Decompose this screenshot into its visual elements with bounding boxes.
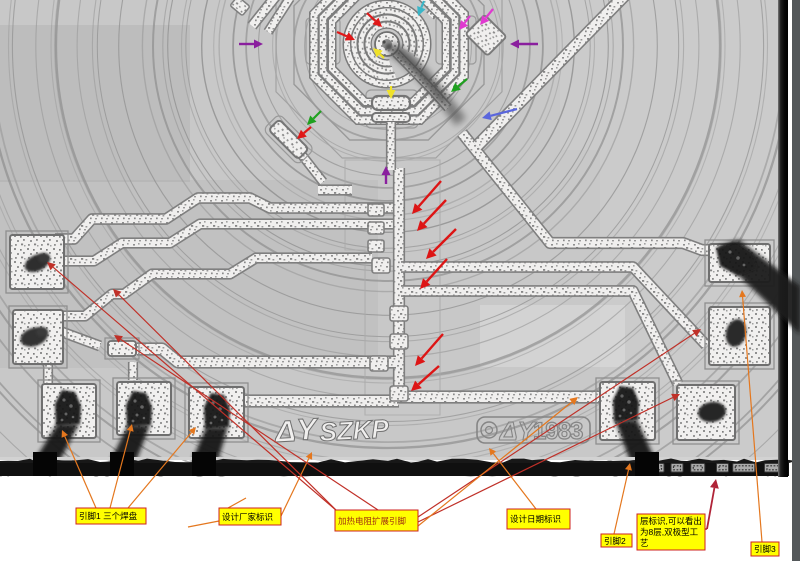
svg-text:引脚1 三个焊盘: 引脚1 三个焊盘 [79, 511, 138, 521]
svg-text:Δ: Δ [274, 415, 297, 449]
svg-text:层标识,可以看出: 层标识,可以看出 [640, 516, 702, 526]
svg-text:艺: 艺 [640, 538, 649, 548]
svg-text:SZKP: SZKP [319, 413, 390, 447]
svg-text:为8层,双极型工: 为8层,双极型工 [640, 527, 699, 537]
svg-text:设计厂家标识: 设计厂家标识 [222, 512, 273, 522]
svg-text:引脚3: 引脚3 [754, 544, 776, 554]
svg-text:1983: 1983 [533, 418, 583, 445]
svg-text:加热电阻扩展引脚: 加热电阻扩展引脚 [338, 516, 406, 526]
svg-text:设计日期标识: 设计日期标识 [510, 514, 561, 524]
svg-text:引脚2: 引脚2 [604, 536, 626, 546]
